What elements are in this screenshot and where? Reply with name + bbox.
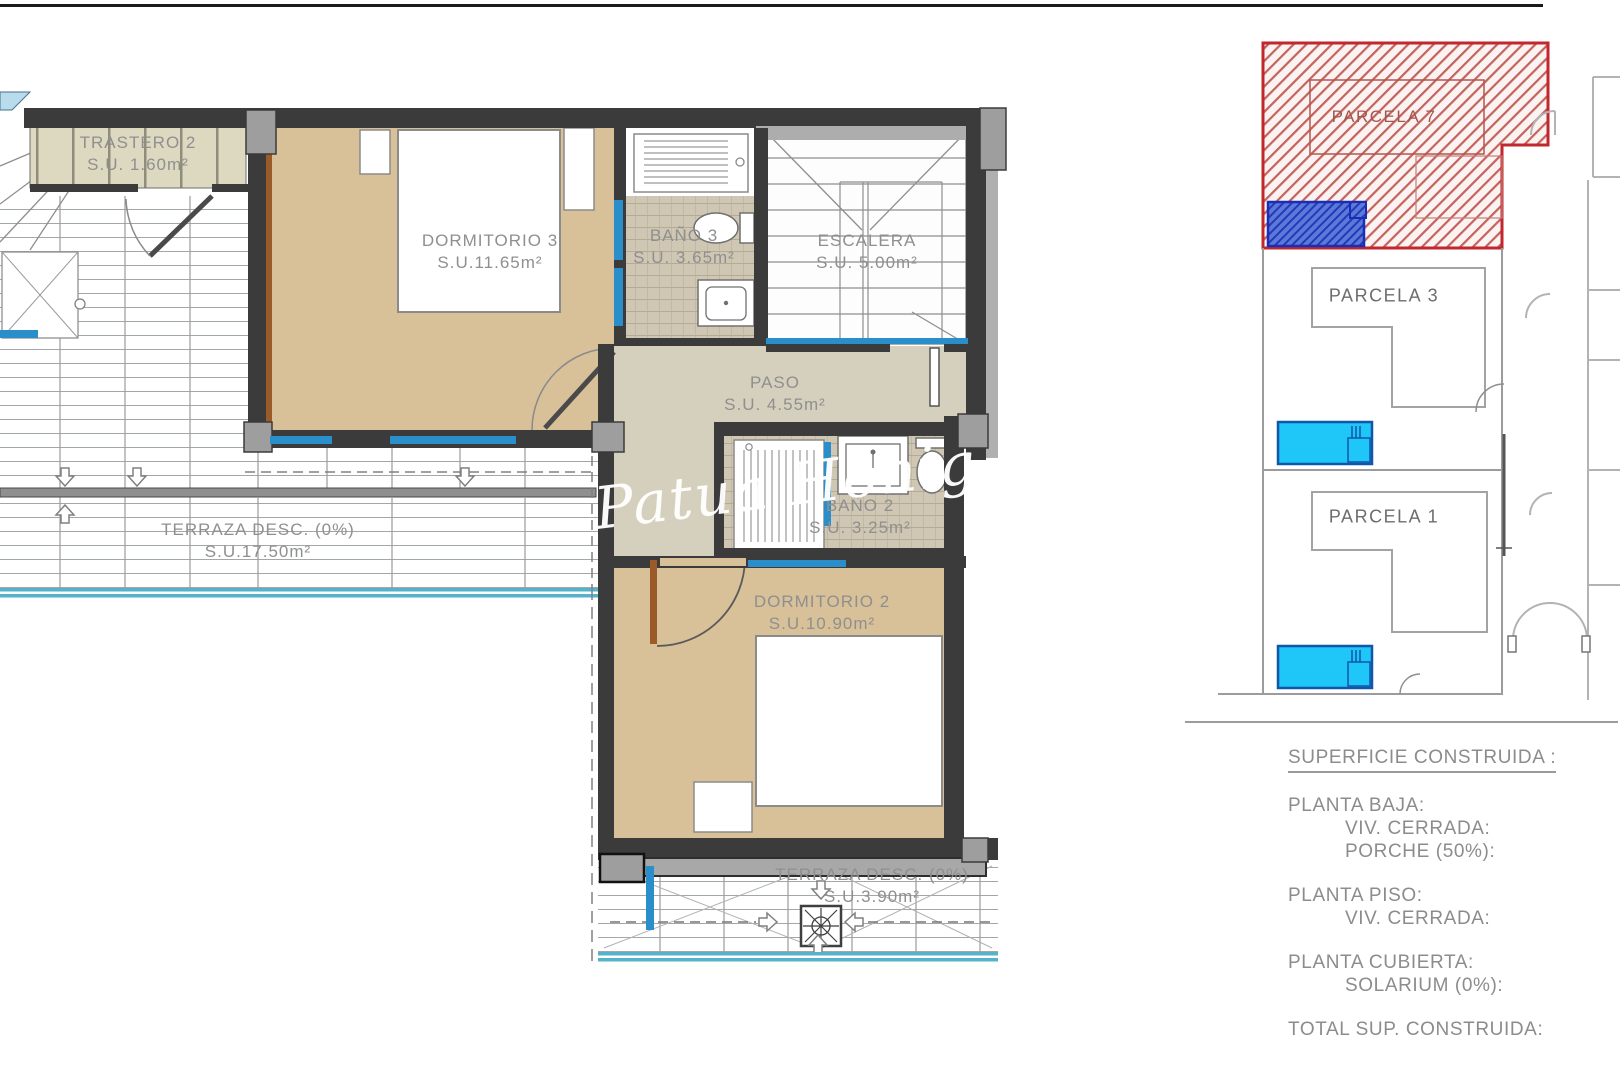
parcela-7-label: PARCELA 7 bbox=[1332, 107, 1437, 127]
legend-viv-cerrada-1: VIV. CERRADA: bbox=[1345, 817, 1618, 840]
parcela-1-label: PARCELA 1 bbox=[1329, 507, 1439, 528]
neighbour-buildings bbox=[1513, 77, 1620, 700]
construction-summary: SUPERFICIE CONSTRUIDA : PLANTA BAJA: VIV… bbox=[1288, 746, 1618, 1041]
legend-planta-baja: PLANTA BAJA: bbox=[1288, 794, 1618, 817]
dormitorio-3-room bbox=[266, 128, 616, 434]
sheet-border-line bbox=[0, 4, 1543, 7]
legend-viv-cerrada-2: VIV. CERRADA: bbox=[1345, 907, 1618, 930]
site-plan bbox=[1185, 43, 1620, 722]
room-label-paso: PASO S.U. 4.55m² bbox=[724, 372, 826, 416]
parcela-3-label: PARCELA 3 bbox=[1329, 286, 1439, 307]
balcony-glass-corner bbox=[0, 92, 30, 110]
room-label-trastero-2: TRASTERO 2 S.U. 1.60m² bbox=[80, 132, 197, 176]
plan-sheet: TRASTERO 2 S.U. 1.60m² DORMITORIO 3 S.U.… bbox=[0, 0, 1620, 1080]
legend-planta-cubierta: PLANTA CUBIERTA: bbox=[1288, 951, 1618, 974]
legend-porche: PORCHE (50%): bbox=[1345, 840, 1618, 863]
bed-2 bbox=[756, 636, 942, 806]
legend-total: TOTAL SUP. CONSTRUIDA: bbox=[1288, 1018, 1618, 1041]
legend-solarium: SOLARIUM (0%): bbox=[1345, 974, 1618, 997]
room-label-terraza-upper: TERRAZA DESC. (0%) S.U.17.50m² bbox=[161, 519, 355, 563]
legend-planta-piso: PLANTA PISO: bbox=[1288, 884, 1618, 907]
legend-title: SUPERFICIE CONSTRUIDA : bbox=[1288, 746, 1556, 773]
room-label-escalera: ESCALERA S.U. 5.00m² bbox=[816, 230, 918, 274]
bed-3 bbox=[398, 130, 560, 312]
room-label-dormitorio-3: DORMITORIO 3 S.U.11.65m² bbox=[422, 230, 558, 274]
room-label-terraza-lower: TERRAZA DESC. (0%) S.U.3.90m² bbox=[775, 864, 969, 908]
door-leaf-stairs bbox=[930, 348, 939, 406]
room-label-bano-3: BAÑO 3 S.U. 3.65m² bbox=[633, 225, 735, 269]
